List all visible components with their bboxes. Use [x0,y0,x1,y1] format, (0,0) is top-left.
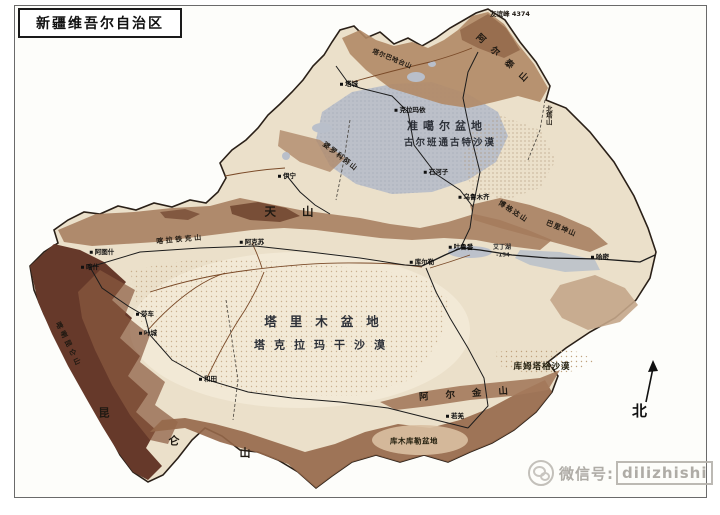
watermark-prefix: 微信号: [559,463,614,484]
wechat-watermark: 微信号: dilizhishi [528,460,713,486]
map-page: 准噶尔盆地古尔班通古特沙漠塔里木盆地塔克拉玛干沙漠库姆塔格沙漠库木库勒盆地天山昆… [0,0,720,515]
map-title-box: 新疆维吾尔自治区 [18,8,182,38]
map-title-text: 新疆维吾尔自治区 [36,13,164,33]
terrain-map-canvas [0,0,720,515]
north-label: 北 [632,400,647,421]
wechat-icon [528,460,554,486]
north-compass: 北 [624,356,684,420]
watermark-account: dilizhishi [616,461,713,485]
